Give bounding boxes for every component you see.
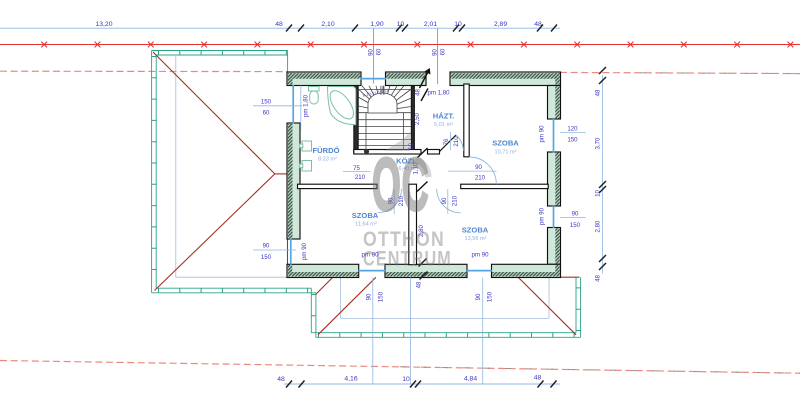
svg-text:150: 150 (378, 291, 385, 302)
svg-text:210: 210 (452, 195, 459, 206)
svg-text:90: 90 (263, 243, 270, 250)
svg-text:4,16: 4,16 (344, 376, 357, 383)
svg-text:8.23 m²: 8.23 m² (318, 157, 337, 163)
svg-text:210: 210 (355, 174, 366, 181)
svg-text:60: 60 (263, 110, 270, 117)
svg-text:150: 150 (261, 98, 272, 105)
svg-text:OC: OC (372, 144, 430, 226)
svg-text:90: 90 (441, 197, 448, 204)
svg-text:210: 210 (453, 136, 460, 147)
svg-text:90: 90 (475, 164, 482, 171)
svg-text:90: 90 (432, 49, 439, 56)
svg-text:10: 10 (595, 190, 602, 197)
svg-text:HÁZT.: HÁZT. (433, 111, 455, 120)
svg-text:pm 90: pm 90 (539, 207, 546, 225)
svg-text:pm 1,80: pm 1,80 (427, 90, 450, 97)
svg-text:5,01 m²: 5,01 m² (434, 122, 453, 128)
svg-text:10: 10 (397, 21, 405, 28)
svg-text:10,71 m²: 10,71 m² (494, 149, 516, 155)
svg-text:10: 10 (454, 21, 462, 28)
svg-text:48: 48 (595, 275, 602, 282)
svg-text:48: 48 (534, 375, 542, 382)
svg-text:4,84: 4,84 (464, 376, 477, 383)
svg-text:2,10: 2,10 (321, 21, 334, 28)
svg-text:1,90: 1,90 (370, 21, 383, 28)
svg-text:SZOBA: SZOBA (492, 138, 519, 147)
svg-text:pm 90: pm 90 (301, 242, 308, 260)
svg-text:76: 76 (443, 138, 450, 145)
svg-text:pm 90: pm 90 (472, 252, 490, 259)
svg-text:13,20: 13,20 (95, 21, 112, 28)
svg-text:3,70: 3,70 (595, 137, 602, 149)
svg-text:60: 60 (376, 48, 383, 55)
svg-text:48: 48 (595, 89, 602, 96)
svg-text:150: 150 (487, 291, 494, 302)
svg-text:2,50: 2,50 (414, 112, 421, 124)
svg-text:13,56 m²: 13,56 m² (464, 236, 486, 242)
svg-text:150: 150 (570, 222, 581, 229)
svg-text:150: 150 (261, 254, 272, 261)
svg-text:48: 48 (534, 21, 542, 28)
svg-text:2,89: 2,89 (494, 21, 507, 28)
svg-text:48: 48 (277, 376, 285, 383)
svg-text:90: 90 (368, 49, 375, 56)
svg-text:CENTRUM: CENTRUM (363, 246, 452, 270)
svg-text:2,01: 2,01 (424, 21, 437, 28)
svg-text:90: 90 (366, 293, 373, 300)
svg-text:150: 150 (567, 137, 578, 144)
svg-text:pm 90: pm 90 (539, 125, 546, 143)
svg-text:SZOBA: SZOBA (462, 225, 489, 234)
svg-text:pm 1,80: pm 1,80 (302, 94, 309, 117)
svg-text:2,80: 2,80 (595, 220, 602, 232)
svg-text:60: 60 (440, 48, 447, 55)
svg-text:120: 120 (567, 126, 578, 133)
svg-text:90: 90 (475, 293, 482, 300)
svg-text:FÜRDŐ: FÜRDŐ (313, 146, 340, 155)
svg-text:210: 210 (475, 175, 486, 182)
svg-text:75: 75 (353, 165, 360, 172)
svg-text:90: 90 (572, 211, 579, 218)
svg-text:48: 48 (275, 21, 283, 28)
svg-text:48: 48 (416, 281, 423, 288)
svg-text:48: 48 (415, 89, 422, 96)
svg-text:10: 10 (402, 376, 410, 383)
